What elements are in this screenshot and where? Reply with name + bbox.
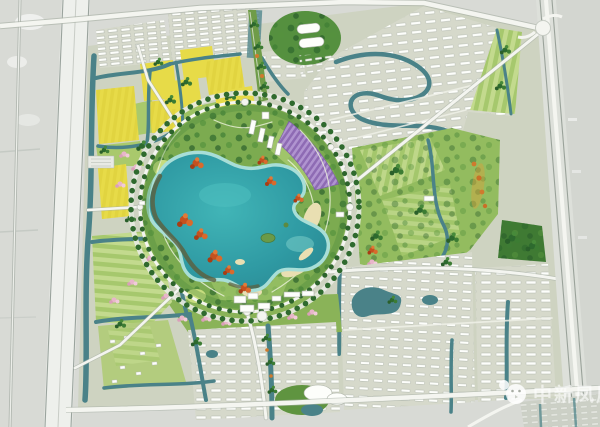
lake-island bbox=[261, 234, 275, 243]
masterplan-svg: 中新凤凰 bbox=[0, 0, 600, 427]
masterplan-rendering: 中新凤凰 bbox=[0, 0, 600, 427]
central-ring-park bbox=[131, 93, 359, 321]
east-edge-woodland bbox=[498, 220, 546, 262]
watermark-text: 中新凤凰 bbox=[533, 383, 600, 406]
west-gate-building bbox=[139, 201, 145, 205]
east-gate-building bbox=[336, 212, 344, 217]
